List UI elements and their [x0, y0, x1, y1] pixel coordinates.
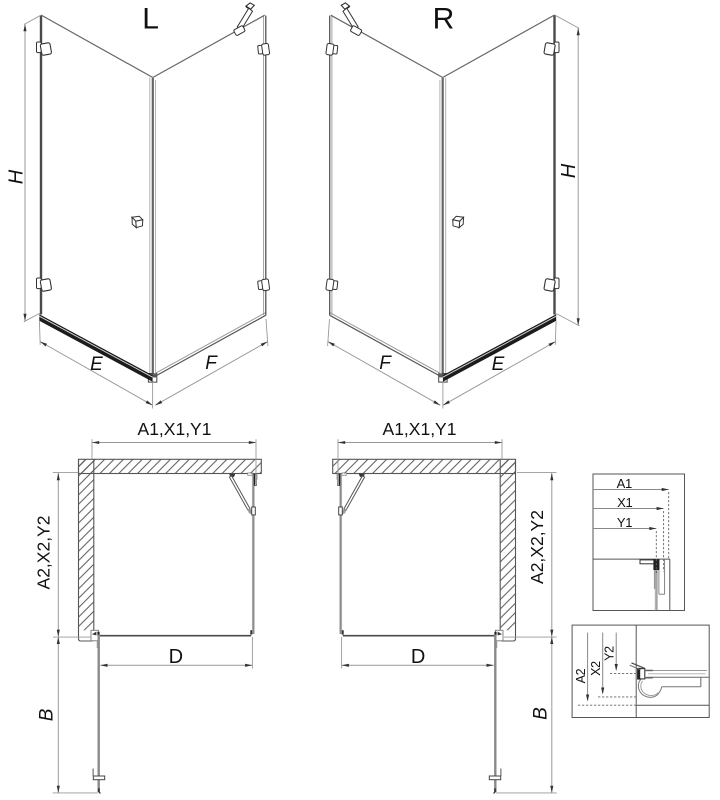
svg-text:L: L: [142, 3, 159, 36]
svg-text:A2,X2,Y2: A2,X2,Y2: [33, 516, 53, 590]
svg-text:A2: A2: [574, 668, 588, 683]
svg-text:X1: X1: [617, 495, 632, 510]
svg-text:F: F: [379, 353, 392, 374]
svg-text:B: B: [531, 707, 552, 720]
svg-text:X2: X2: [589, 661, 603, 676]
svg-text:H: H: [6, 169, 28, 184]
svg-text:A1,X1,Y1: A1,X1,Y1: [138, 419, 212, 439]
svg-text:F: F: [205, 353, 218, 374]
svg-text:Y1: Y1: [617, 515, 632, 530]
svg-text:D: D: [411, 646, 425, 668]
svg-text:A1,X1,Y1: A1,X1,Y1: [383, 419, 457, 439]
svg-text:E: E: [492, 354, 505, 375]
svg-text:D: D: [169, 646, 183, 668]
svg-text:B: B: [37, 708, 58, 721]
svg-text:A2,X2,Y2: A2,X2,Y2: [527, 510, 547, 584]
svg-text:H: H: [558, 163, 580, 178]
svg-text:Y2: Y2: [602, 646, 616, 661]
svg-text:E: E: [90, 354, 103, 375]
svg-text:R: R: [433, 3, 455, 36]
svg-text:A1: A1: [617, 476, 632, 491]
